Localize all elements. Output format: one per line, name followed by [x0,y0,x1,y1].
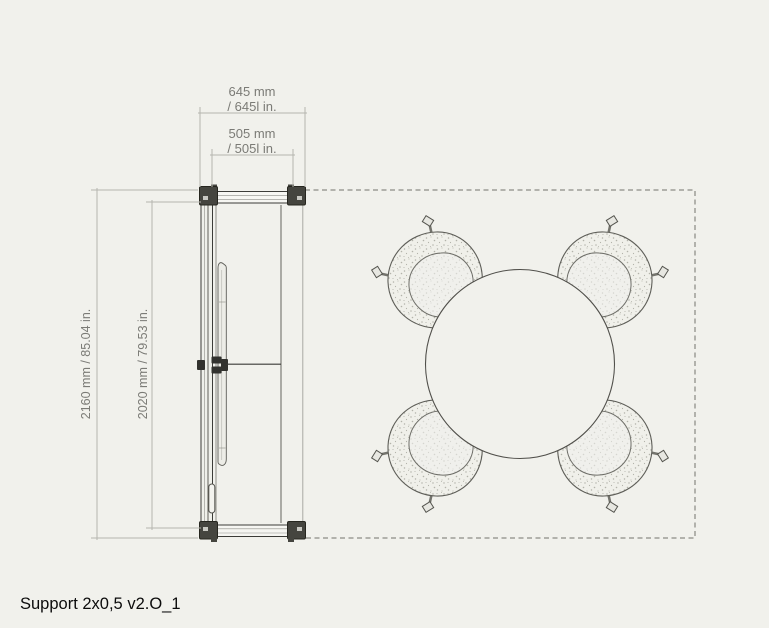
corner-bracket-bottom-left [200,522,218,543]
bottom-rail [215,525,290,537]
drawing-canvas: 645 mm / 645l in. 505 mm / 505l in. 2160… [0,0,769,628]
dim-label-height-outer: 2160 mm / 85.04 in. [79,309,93,419]
round-table [426,270,615,459]
corner-bracket-top-left [200,185,218,206]
door-handle [209,484,215,513]
dim-label-width-inner-mm: 505 mm [229,126,276,141]
drawing-title: Support 2x0,5 v2.O_1 [20,595,181,613]
corner-bracket-bottom-right [288,522,306,543]
technical-drawing: 645 mm / 645l in. 505 mm / 505l in. 2160… [0,0,769,628]
dim-label-width-outer-mm: 645 mm [229,84,276,99]
corner-bracket-top-right [288,185,306,206]
dim-label-width-inner-in: / 505l in. [227,141,276,156]
top-rail [215,192,290,204]
support-side-view [197,185,306,543]
dim-label-width-outer-in: / 645l in. [227,99,276,114]
dim-label-height-inner: 2020 mm / 79.53 in. [136,309,150,419]
